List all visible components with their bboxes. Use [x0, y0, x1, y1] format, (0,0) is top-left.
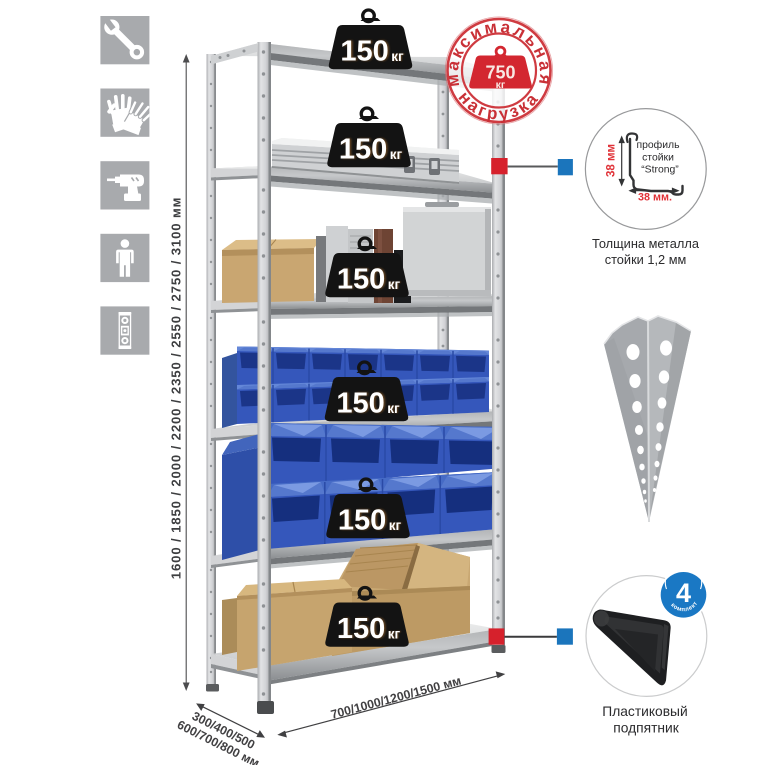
svg-text:4: 4: [676, 578, 691, 608]
svg-text:38 мм: 38 мм: [606, 144, 618, 177]
svg-text:профиль: профиль: [636, 139, 679, 151]
svg-text:38 мм.: 38 мм.: [638, 192, 672, 204]
svg-text:подпятник: подпятник: [613, 721, 679, 736]
svg-text:1600 / 1850 / 2000 / 2200 / 23: 1600 / 1850 / 2000 / 2200 / 2350 / 2550 …: [169, 197, 184, 579]
svg-text:стойки: стойки: [642, 153, 674, 164]
svg-text:стойки 1,2 мм: стойки 1,2 мм: [605, 252, 687, 267]
svg-text:кг: кг: [496, 79, 506, 91]
svg-text:Толщина металла: Толщина металла: [592, 236, 700, 251]
svg-text:“Strong”: “Strong”: [641, 165, 679, 176]
svg-text:Пластиковый: Пластиковый: [602, 704, 687, 719]
